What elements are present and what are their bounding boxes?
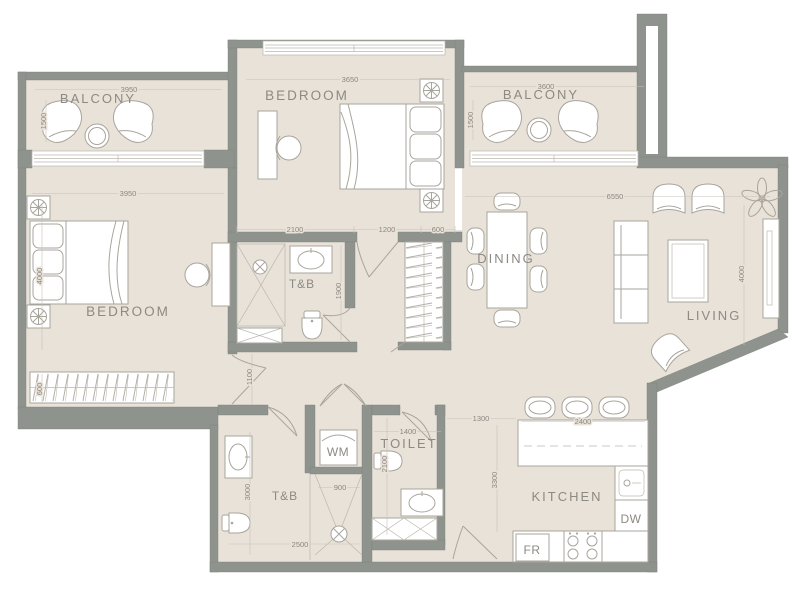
dim-tb-upper-depth: 1900 [334,283,343,300]
window-balcony-right [470,151,638,166]
dim-balcony-left-depth: 1500 [39,113,48,130]
dim-closet-width: 600 [432,225,445,234]
label-balcony-left: BALCONY [60,91,136,106]
stove [564,531,602,562]
wall [18,407,218,429]
wall [210,425,218,572]
tv-console [763,219,779,318]
wall [218,405,268,415]
dim-wardrobe-depth: 600 [35,383,44,396]
label-bedroom-top: BEDROOM [265,88,349,103]
dim-living-depth: 4000 [737,266,746,283]
wall [455,40,464,168]
coffee-table [668,240,708,302]
dim-shower-width: 900 [334,483,347,492]
sink [401,489,443,516]
dim-passage-width: 1300 [473,414,490,423]
wall [443,242,451,350]
dim-toilet-width: 1400 [400,427,417,436]
label-balcony-right: BALCONY [503,87,579,102]
wall [362,405,372,562]
dim-kitchen-depth: 3300 [490,472,499,489]
floor-plan-svg: 3950 1500 3650 3600 1500 3950 4000 600 2… [0,0,800,592]
desk [258,111,277,179]
wall [637,157,788,168]
desk-chair [185,263,209,287]
dim-bedroom-left-depth: 4000 [35,268,44,285]
dim-island-width: 2400 [575,417,592,426]
wall [228,40,237,168]
dim-tb-lower-depth: 3000 [243,484,252,501]
label-washing-machine: WM [327,445,349,459]
label-bedroom-left: BEDROOM [86,304,170,319]
wall [18,150,32,168]
label-living: LIVING [687,308,742,323]
cabinet [372,518,437,540]
desk-chair [277,136,301,160]
wall-window-slot [646,26,658,154]
wall [310,467,364,474]
dim-balcony-right-depth: 1500 [466,112,475,129]
dim-seg2: 1200 [379,225,396,234]
wall [204,150,234,168]
dim-hall-width: 1100 [245,369,254,385]
wall [398,342,451,350]
wall [372,405,400,415]
wardrobe [30,372,174,403]
toilet-fixture [222,513,250,533]
wall [345,242,355,308]
label-dining: DINING [477,251,535,266]
wall [437,405,445,545]
sink [290,246,332,273]
wall [398,232,462,242]
wall [305,405,315,473]
dim-seg1: 2100 [287,225,304,234]
label-toilet: TOILET [380,436,437,451]
label-dishwasher: DW [621,512,642,526]
dim-tb-lower-width: 2500 [292,540,309,549]
sink [225,436,252,478]
desk [212,243,230,306]
sofa [614,221,648,323]
label-tb-upper: T&B [289,277,315,291]
kitchen-island [518,420,648,466]
floor-plan: 3950 1500 3650 3600 1500 3950 4000 600 2… [0,0,800,592]
dim-bedroom-left-width: 3950 [120,189,137,198]
wall [18,72,26,409]
label-kitchen: KITCHEN [531,489,602,504]
dim-living-width: 6550 [607,192,624,201]
toilet-fixture [302,311,322,339]
wall [18,72,234,80]
dim-bedroom-top-width: 3650 [342,75,359,84]
label-fridge: FR [524,543,541,557]
window-balcony-left [32,151,204,166]
wall [372,540,445,550]
label-tb-lower: T&B [272,489,298,503]
window-bedroom-top [263,41,445,55]
wall [462,66,638,72]
wall [210,562,657,572]
dim-toilet-depth: 2100 [380,456,389,473]
